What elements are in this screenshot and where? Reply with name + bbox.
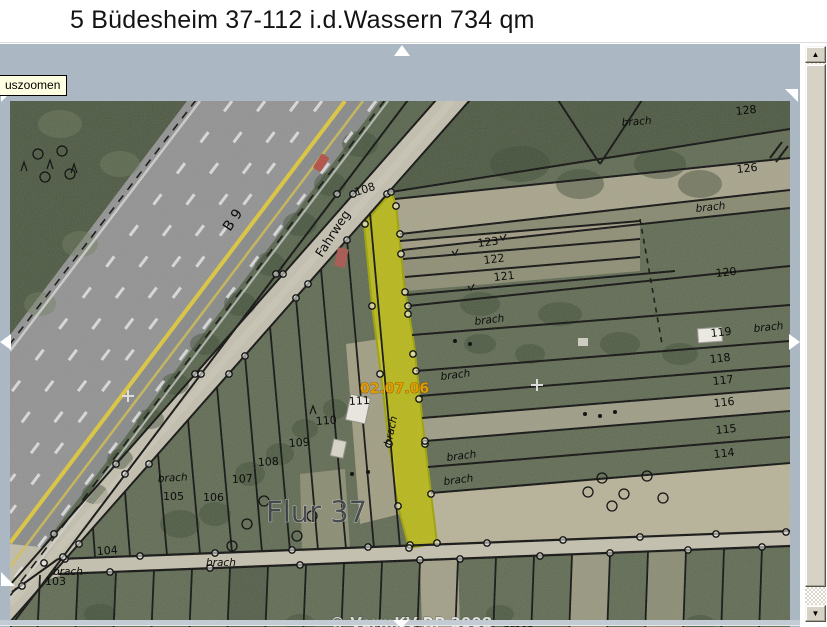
parcel-number: 122 — [483, 252, 505, 267]
parcel-number: 107 — [231, 472, 253, 486]
parcel-number: 106 — [203, 491, 224, 504]
aerial-map[interactable]: 103 104 105 106 107 108 109 110 111 108 … — [10, 101, 790, 627]
parcel-number: 115 — [715, 422, 737, 437]
land-use-label: brach — [621, 115, 652, 129]
parcel-number: 114 — [713, 446, 735, 461]
down-arrow-icon: ▼ — [812, 609, 820, 618]
parcel-number: 105 — [163, 490, 184, 503]
parcel-number: 109 — [288, 436, 310, 450]
parcel-number: 108 — [257, 455, 279, 469]
application-window: 5 Büdesheim 37-112 i.d.Wassern 734 qm — [0, 0, 827, 627]
parcel-number: 120 — [715, 265, 737, 280]
pan-northeast-arrow-icon[interactable] — [785, 89, 798, 102]
land-use-label: brach — [158, 471, 188, 485]
flur-label: Flur 37 — [266, 495, 367, 529]
pan-right-arrow-icon[interactable] — [789, 334, 800, 350]
map-frame: 103 104 105 106 107 108 109 110 111 108 … — [0, 44, 800, 627]
parcel-number: 123 — [477, 235, 499, 250]
date-stamp: 02.07.06 — [360, 381, 429, 397]
map-viewport[interactable]: 103 104 105 106 107 108 109 110 111 108 … — [10, 101, 790, 627]
pan-left-arrow-icon[interactable] — [0, 334, 11, 350]
parcel-number: 128 — [735, 103, 757, 118]
pan-southwest-arrow-icon[interactable] — [1, 572, 15, 586]
scroll-up-button[interactable]: ▲ — [805, 46, 826, 63]
pan-down-arrow-icon[interactable] — [393, 620, 409, 627]
parcel-number: 126 — [736, 161, 758, 176]
page-title: 5 Büdesheim 37-112 i.d.Wassern 734 qm — [70, 6, 535, 35]
scroll-down-button[interactable]: ▼ — [805, 605, 826, 622]
land-use-label: brach — [53, 566, 83, 578]
zoom-out-tooltip: uszoomen — [0, 75, 67, 96]
pan-up-arrow-icon[interactable] — [394, 45, 410, 56]
parcel-number: 121 — [493, 269, 515, 284]
parcel-number: 104 — [96, 544, 118, 558]
land-use-label: brach — [206, 557, 236, 569]
title-divider — [0, 42, 827, 43]
parcel-number: 119 — [710, 325, 732, 340]
parcel-number: 117 — [712, 373, 734, 388]
vertical-scrollbar-thumb[interactable] — [805, 64, 826, 587]
photo-noise-overlay — [10, 101, 790, 627]
parcel-number: 118 — [709, 351, 731, 366]
parcel-number: 110 — [315, 414, 337, 428]
up-arrow-icon: ▲ — [812, 50, 820, 59]
parcel-number: 116 — [713, 395, 735, 410]
